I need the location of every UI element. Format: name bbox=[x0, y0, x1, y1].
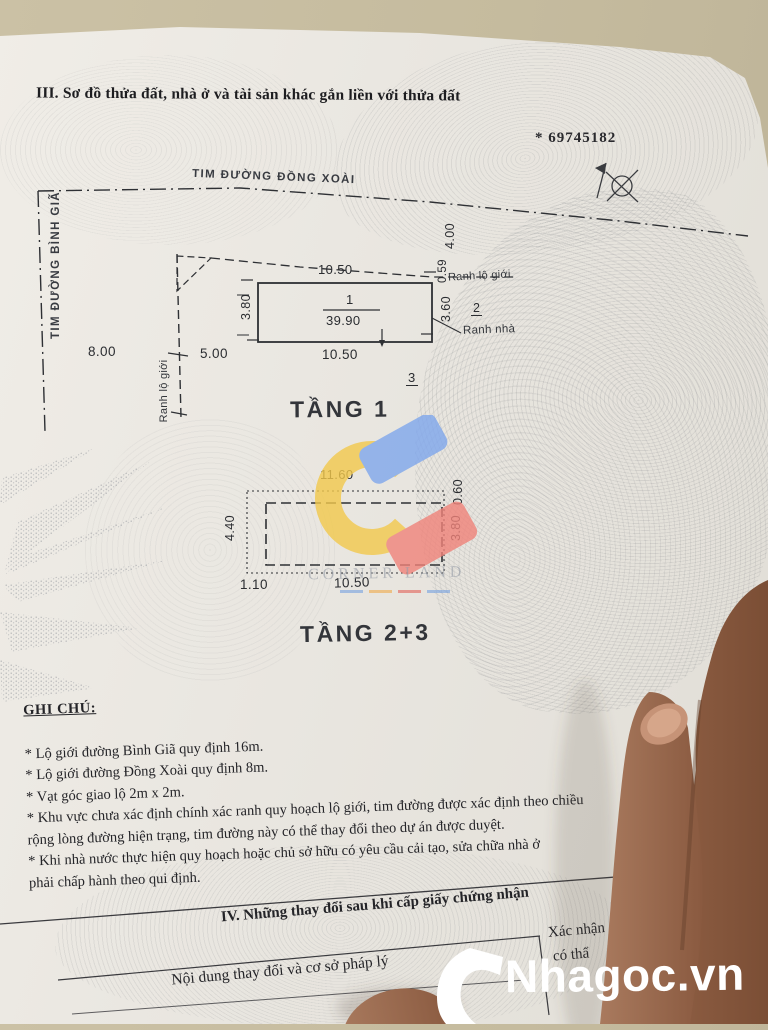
dim-left: 3.80 bbox=[239, 287, 253, 327]
notes-block: GHI CHÚ: * Lộ giới đường Bình Giã quy đị… bbox=[23, 679, 669, 894]
house-boundary-label: Ranh nhà bbox=[463, 323, 516, 337]
serial-number: * 69745182 bbox=[535, 130, 616, 147]
dim-5: 5.00 bbox=[200, 346, 228, 361]
starburst-ornament bbox=[0, 448, 172, 702]
document-paper: III. Sơ đồ thửa đất, nhà ở và tài sản kh… bbox=[0, 0, 768, 1024]
subtext-dash bbox=[369, 590, 392, 593]
dim-top: 10.50 bbox=[318, 262, 353, 277]
f23-dim-bottom-left: 1.10 bbox=[240, 577, 268, 592]
north-arrow-icon bbox=[595, 163, 638, 202]
boundary-left-label: Ranh lộ giới bbox=[158, 346, 170, 436]
corner-land-blue-shape bbox=[356, 415, 451, 487]
floor1-linework bbox=[38, 188, 748, 432]
floor23-title: TẦNG 2+3 bbox=[300, 619, 431, 648]
dim-right: 3.60 bbox=[439, 289, 453, 329]
subtext-dash bbox=[340, 590, 363, 593]
section-iii-title: III. Sơ đồ thửa đất, nhà ở và tài sản kh… bbox=[36, 85, 461, 106]
corner-land-subtext bbox=[340, 590, 450, 594]
dim-road-half: 4.00 bbox=[443, 216, 457, 256]
lot-area: 39.90 bbox=[326, 313, 361, 328]
lot-number: 1 bbox=[346, 292, 354, 307]
corner-land-text: CORNER LAND bbox=[308, 564, 466, 585]
subtext-dash bbox=[398, 590, 421, 593]
subtext-dash bbox=[427, 590, 450, 593]
adjacent-lot-2: 2 bbox=[471, 301, 482, 315]
dim-8: 8.00 bbox=[88, 344, 116, 359]
photo-of-land-certificate: { "document": { "section_title": "III. S… bbox=[0, 0, 768, 1024]
dim-bottom: 10.50 bbox=[322, 347, 358, 362]
adjacent-lot-3: 3 bbox=[406, 370, 418, 385]
corner-land-logo bbox=[290, 415, 520, 615]
nhagoc-logo-text: Nhagoc.vn bbox=[505, 947, 745, 1004]
road-left-label: TIM ĐƯỜNG BÌNH GIÃ bbox=[50, 190, 62, 340]
f23-dim-left: 4.40 bbox=[223, 508, 237, 548]
